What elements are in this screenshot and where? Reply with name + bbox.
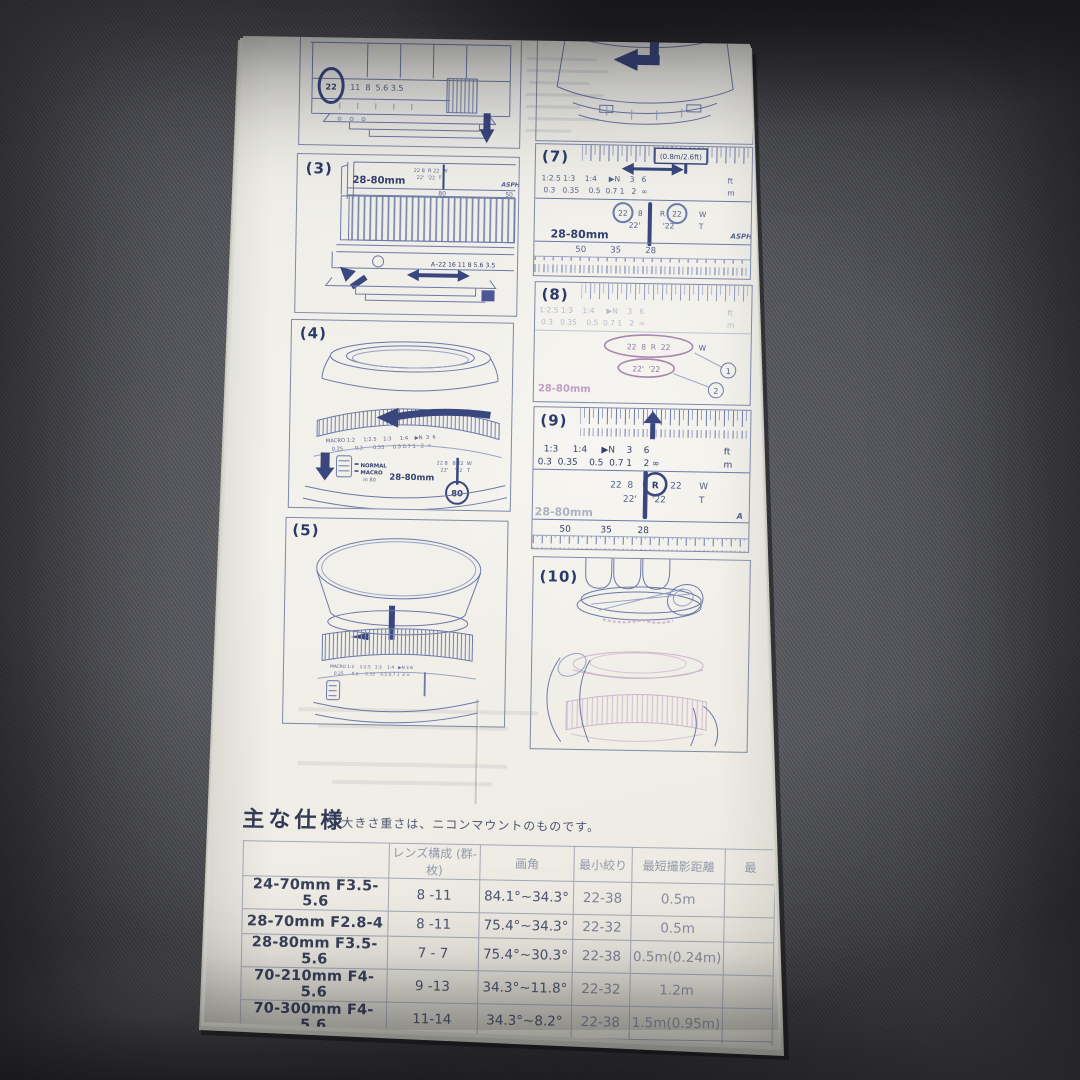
photo-vignette bbox=[0, 0, 1080, 1080]
photo-scene: 22 11 8 5.6 3.5 (3) 28-80mm 22 bbox=[0, 0, 1080, 1080]
